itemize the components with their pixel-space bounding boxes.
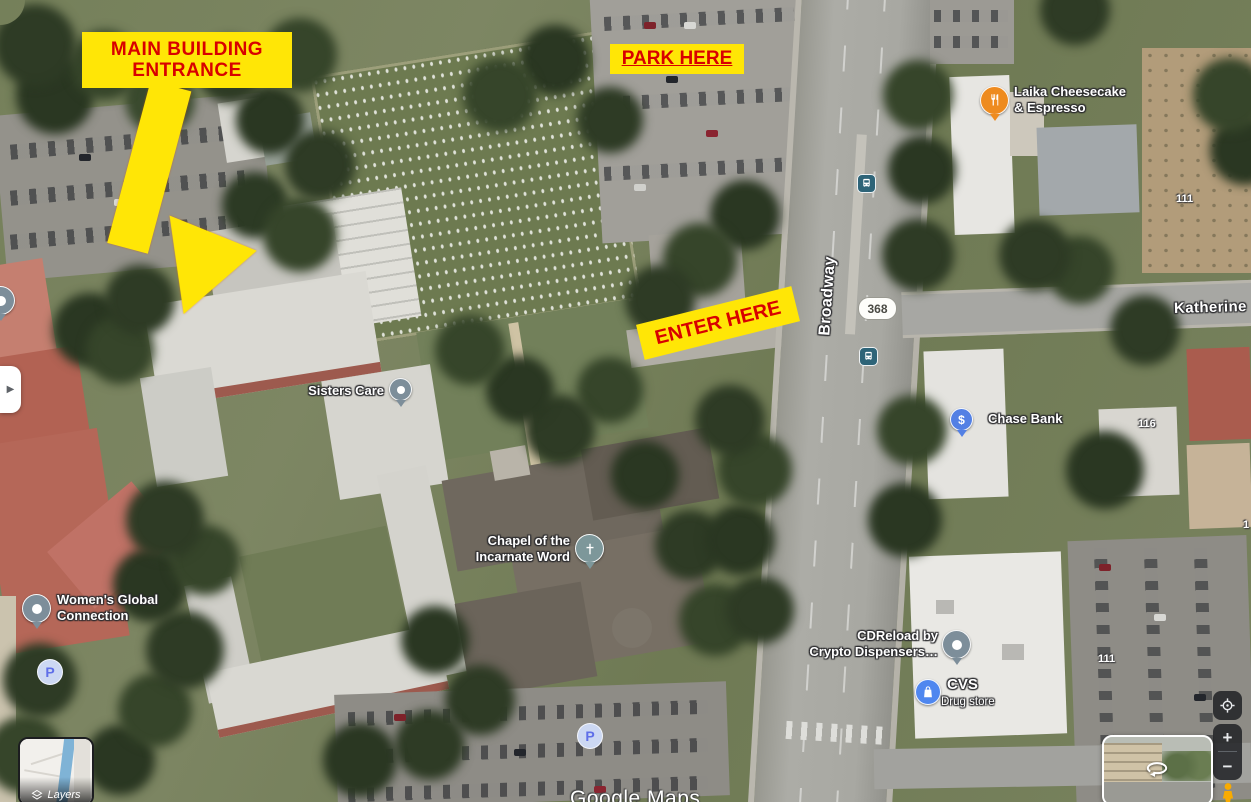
pegman-icon[interactable] — [1216, 782, 1240, 802]
poi-pin-cvs[interactable] — [915, 679, 941, 705]
restaurant-icon — [980, 86, 1009, 115]
chapel-building — [455, 582, 598, 699]
annotation-main-entrance: MAIN BUILDING ENTRANCE — [82, 32, 292, 88]
poi-pin-clipped[interactable] — [0, 286, 15, 326]
poi-pin-laika[interactable] — [980, 86, 1009, 126]
dirt-lot — [1142, 48, 1251, 273]
building — [490, 445, 531, 481]
parking-icon[interactable]: P — [577, 723, 603, 749]
red-roof-building — [1186, 347, 1251, 441]
parking-lot — [590, 0, 812, 243]
cross-icon — [575, 534, 604, 563]
path — [0, 596, 16, 802]
poi-pin-sisters-care[interactable] — [389, 378, 412, 412]
annotation-park-here: PARK HERE — [610, 44, 744, 74]
my-location-button[interactable] — [1213, 691, 1242, 720]
roof-unit — [936, 600, 954, 614]
parking-icon[interactable]: P — [37, 659, 63, 685]
dot-icon — [942, 630, 971, 659]
building-roof-units — [259, 112, 318, 166]
poi-label-cvs[interactable]: CVS — [947, 677, 978, 693]
house-number: 111 — [1176, 191, 1193, 207]
poi-label-cdreload[interactable]: CDReload by Crypto Dispensers… — [756, 628, 938, 660]
poi-pin-womens-global[interactable] — [22, 594, 51, 634]
parked-cars — [0, 0, 6, 1]
poi-pin-chapel[interactable] — [575, 534, 604, 574]
street-view-thumbnail[interactable] — [1102, 735, 1213, 802]
poi-label-sisters-care[interactable]: Sisters Care — [260, 383, 384, 399]
building — [1187, 443, 1251, 529]
map-viewport: Sisters Care Laika Cheesecake & Espresso… — [0, 0, 1251, 802]
poi-label-chapel[interactable]: Chapel of the Incarnate Word — [438, 533, 570, 565]
poi-label-laika[interactable]: Laika Cheesecake & Espresso — [1014, 84, 1126, 116]
chapel-building — [581, 427, 720, 520]
building — [1036, 124, 1139, 215]
car-row — [934, 36, 1008, 48]
layers-label-overlay: Layers — [20, 777, 92, 802]
poi-pin-cdreload[interactable] — [942, 630, 971, 670]
dot-icon — [0, 286, 15, 315]
roof-unit — [1002, 644, 1024, 660]
bus-stop-icon[interactable] — [857, 174, 876, 193]
route-badge-368: 368 — [858, 297, 897, 320]
shopping-bag-icon — [915, 679, 941, 705]
poi-sublabel-cvs[interactable]: Drug store — [941, 694, 995, 710]
dollar-icon: $ — [950, 408, 973, 431]
divider — [1218, 751, 1237, 752]
dot-icon — [389, 378, 412, 401]
rotate-view-icon — [1140, 759, 1174, 779]
car-row — [934, 10, 1008, 22]
chevron-right-icon: ▶ — [7, 384, 15, 395]
chapel-apse — [612, 608, 652, 648]
house-number: 116 — [1138, 416, 1156, 432]
house-number: 111 — [1098, 651, 1115, 667]
map-canvas[interactable] — [0, 0, 1251, 802]
google-maps-watermark: Google Maps — [570, 787, 700, 802]
house-number: 1 — [1243, 517, 1249, 533]
layers-icon — [31, 789, 43, 801]
layers-control[interactable]: Layers — [18, 737, 94, 802]
dot-icon — [22, 594, 51, 623]
poi-pin-chase-bank[interactable]: $ — [950, 408, 973, 442]
poi-label-chase-bank[interactable]: Chase Bank — [988, 411, 1062, 427]
zoom-in-button[interactable]: + — [1213, 724, 1242, 751]
poi-label-womens-global[interactable]: Women's Global Connection — [57, 592, 158, 624]
my-location-icon — [1219, 697, 1236, 714]
tree-cluster — [0, 0, 25, 25]
zoom-control: + − — [1213, 724, 1242, 780]
street-label-katherine: Katherine — [1174, 299, 1247, 317]
bus-stop-icon[interactable] — [859, 347, 878, 366]
zoom-out-button[interactable]: − — [1213, 753, 1242, 780]
thumbnail-road — [1104, 782, 1211, 802]
side-panel-expand-button[interactable]: ▶ — [0, 366, 21, 413]
